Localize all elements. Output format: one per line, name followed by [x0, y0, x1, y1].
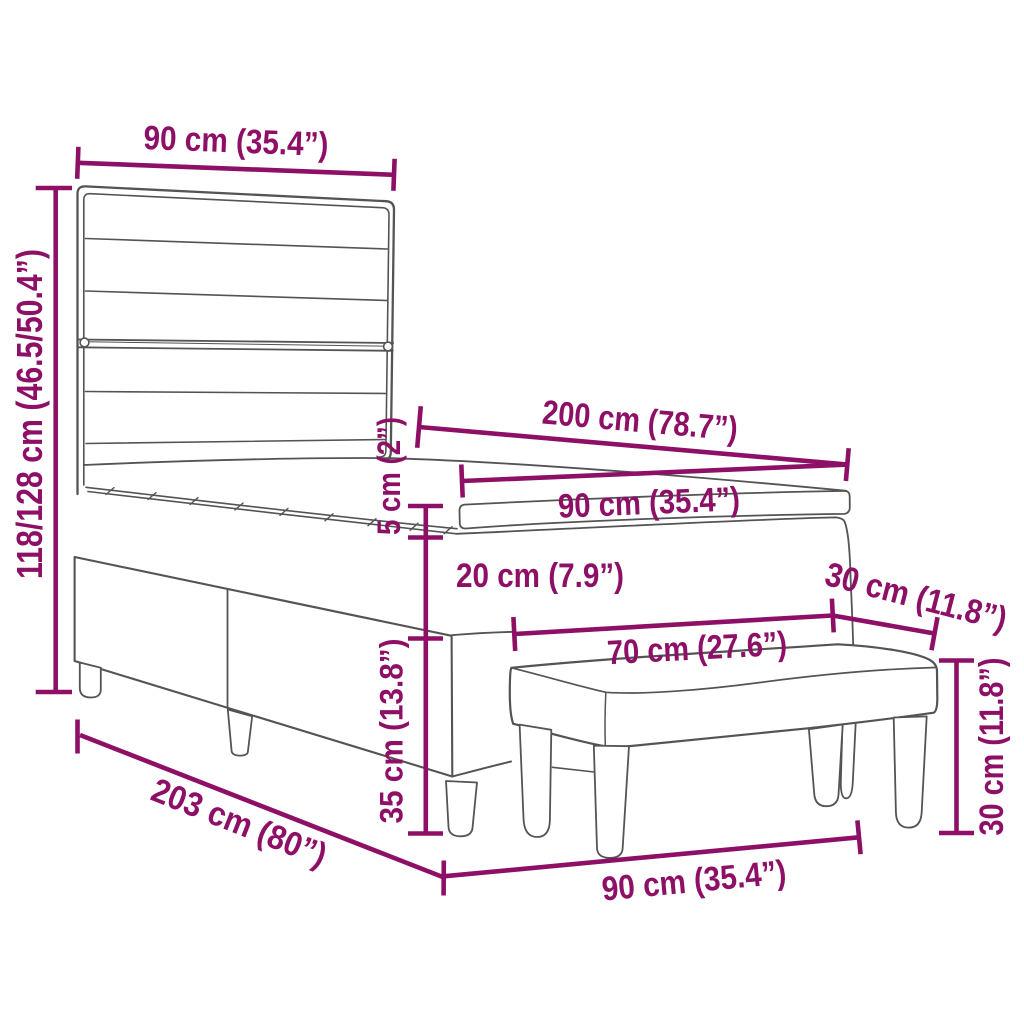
- svg-text:90 cm (35.4”): 90 cm (35.4”): [143, 119, 329, 164]
- svg-text:5 cm (2”): 5 cm (2”): [371, 417, 407, 535]
- svg-text:35 cm (13.8”): 35 cm (13.8”): [374, 639, 410, 824]
- svg-text:30 cm (11.8”): 30 cm (11.8”): [973, 658, 1011, 836]
- svg-text:90 cm (35.4”): 90 cm (35.4”): [557, 480, 740, 526]
- svg-text:20 cm (7.9”): 20 cm (7.9”): [456, 557, 624, 595]
- svg-text:118/128 cm (46.5/50.4”): 118/128 cm (46.5/50.4”): [9, 249, 50, 579]
